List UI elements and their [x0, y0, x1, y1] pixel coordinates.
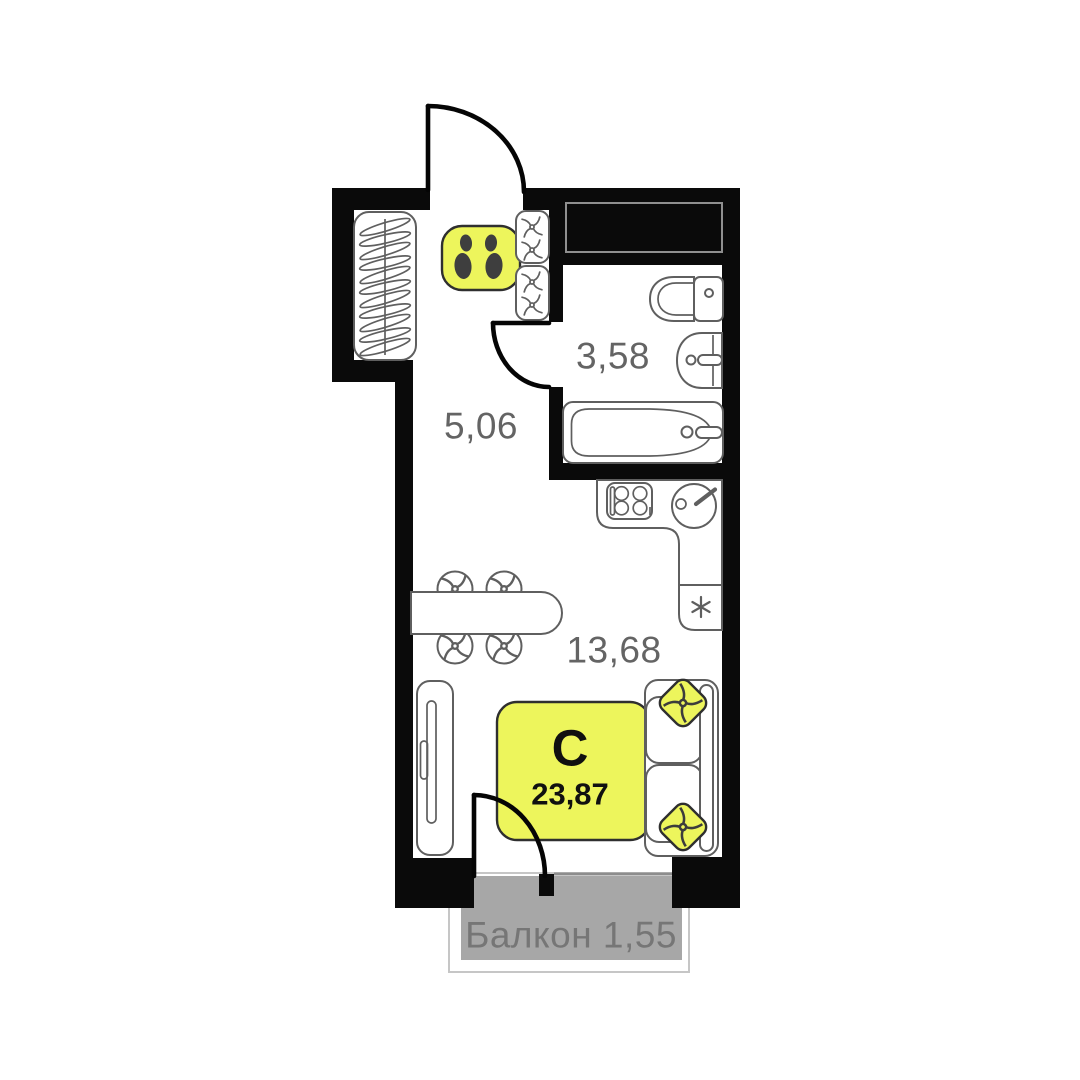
vent-shaft-icon: [552, 210, 740, 265]
living-area-label: 13,68: [566, 632, 661, 669]
balcony-name: Балкон: [465, 915, 592, 956]
dining-table-icon: [411, 572, 562, 664]
balcony-area: 1,55: [603, 915, 677, 956]
kitchen-counter: [597, 480, 722, 630]
balcony-label: Балкон 1,55: [465, 917, 677, 954]
wardrobe-icon: [417, 681, 453, 855]
stove-icon: [607, 483, 652, 519]
washbasin-icon: [677, 333, 722, 388]
toilet-icon: [650, 277, 723, 321]
hallway-area-label: 5,06: [444, 408, 518, 445]
hanger-rack-icon: [354, 212, 416, 360]
bathtub-icon: [563, 402, 723, 463]
bathroom-door-icon: [493, 323, 549, 387]
kitchen-sink-icon: [672, 484, 716, 528]
shoe-mat-icon: [442, 226, 520, 290]
unit-total-area-label: 23,87: [531, 779, 609, 810]
table-top: [411, 592, 562, 634]
unit-type-letter: С: [552, 723, 589, 774]
bathroom-area-label: 3,58: [576, 338, 650, 375]
entry-door-icon: [428, 106, 524, 192]
sofa-icon: [645, 676, 718, 856]
floor-plan-canvas: 5,06 3,58 13,68 С 23,87 Балкон 1,55: [0, 0, 1080, 1080]
